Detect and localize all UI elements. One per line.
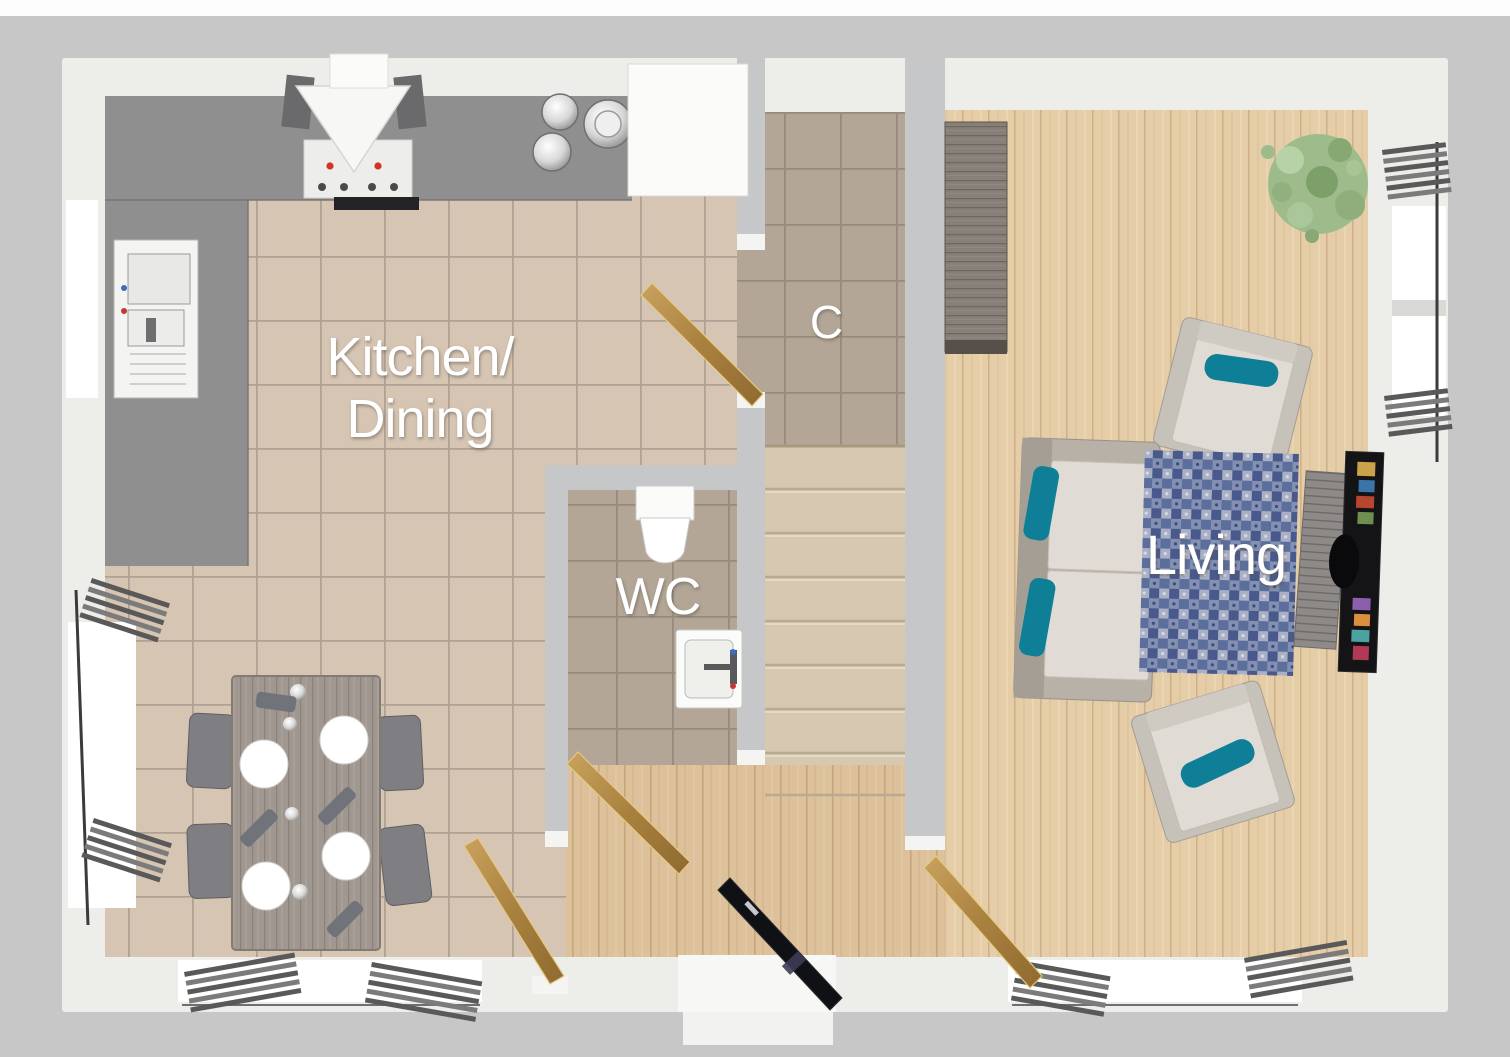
page-top-strip [0,0,1510,16]
wall-living-left [905,58,945,850]
tv-media-unit [1294,451,1384,673]
floor-plan-svg: Kitchen/ Dining WC C Living [0,0,1510,1057]
living-label: Living [1146,523,1286,586]
washbasin [676,630,742,708]
oven-front [334,197,419,210]
kitchen-dining-label-line2: Dining [346,389,493,449]
basin-tap [704,664,734,670]
front-door-step [683,1012,833,1045]
tall-cabinet [628,64,748,196]
kitchen-left-top-window [66,200,98,398]
wall-kitchen-hall [545,465,568,845]
wc-label: WC [616,568,701,626]
floor-plan-image: Kitchen/ Dining WC C Living [0,0,1510,1057]
kitchen-dining-label-line1: Kitchen/ [326,327,514,387]
hall-floor-under-stairs [765,795,905,957]
cold-tap-dot [121,285,127,291]
hot-tap-dot [121,308,127,314]
wall-stairs-wc [737,392,765,765]
sink-unit-left [114,240,198,398]
sofa [1013,438,1160,703]
sideboard [945,122,1007,354]
cupboard-label: C [810,296,842,348]
stairs-carpet [765,445,905,800]
tap [146,318,156,342]
